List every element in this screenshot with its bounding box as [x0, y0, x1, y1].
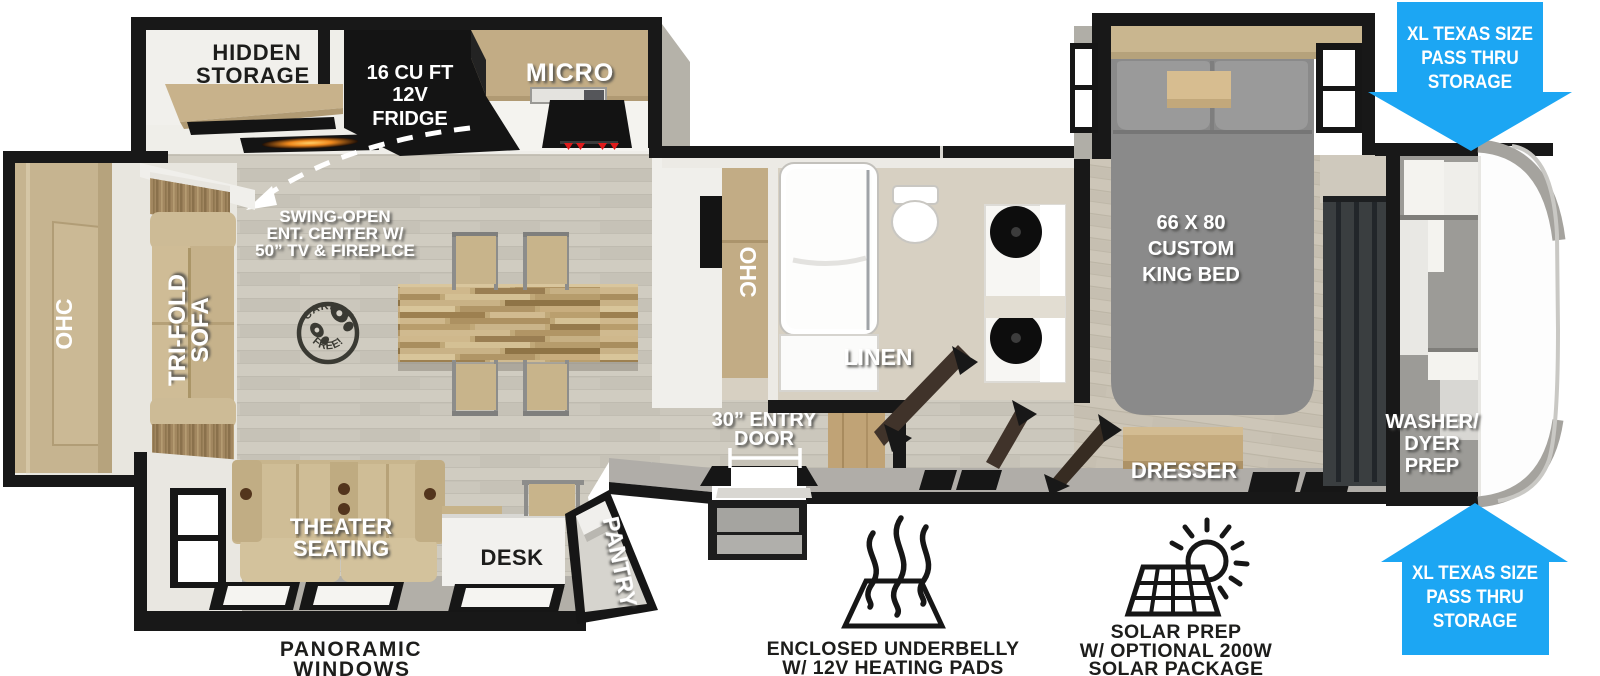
svg-text:KING BED: KING BED — [1142, 264, 1240, 286]
svg-text:LINEN: LINEN — [844, 344, 913, 370]
svg-text:PASS THRU: PASS THRU — [1421, 47, 1518, 68]
svg-text:PASS THRU: PASS THRU — [1426, 586, 1523, 607]
svg-text:FRIDGE: FRIDGE — [372, 108, 448, 130]
svg-text:WINDOWS: WINDOWS — [293, 658, 410, 676]
svg-text:16 CU FT: 16 CU FT — [367, 62, 454, 84]
svg-text:HIDDEN: HIDDEN — [212, 40, 301, 65]
svg-text:W/ 12V HEATING PADS: W/ 12V HEATING PADS — [782, 657, 1003, 676]
svg-text:XL TEXAS SIZE: XL TEXAS SIZE — [1412, 562, 1538, 583]
svg-text:XL TEXAS SIZE: XL TEXAS SIZE — [1407, 23, 1533, 44]
svg-text:OHC: OHC — [51, 298, 77, 349]
svg-text:WASHER/: WASHER/ — [1385, 411, 1479, 433]
svg-text:66 X 80: 66 X 80 — [1157, 212, 1226, 234]
svg-text:DOOR: DOOR — [734, 428, 795, 450]
svg-text:DRESSER: DRESSER — [1131, 458, 1237, 483]
svg-text:OHC: OHC — [735, 246, 761, 297]
svg-text:CUSTOM: CUSTOM — [1148, 238, 1234, 260]
svg-text:50” TV & FIREPLCE: 50” TV & FIREPLCE — [255, 241, 415, 260]
svg-text:SOFA: SOFA — [187, 297, 214, 362]
svg-text:12V: 12V — [392, 84, 428, 106]
svg-text:MICRO: MICRO — [526, 59, 614, 87]
svg-text:PREP: PREP — [1405, 455, 1459, 477]
svg-text:SEATING: SEATING — [293, 536, 389, 561]
svg-text:SOLAR PACKAGE: SOLAR PACKAGE — [1089, 658, 1264, 676]
svg-text:STORAGE: STORAGE — [1428, 71, 1512, 92]
svg-text:DYER: DYER — [1404, 433, 1460, 455]
svg-text:DESK: DESK — [480, 545, 543, 570]
svg-text:STORAGE: STORAGE — [1433, 610, 1517, 631]
